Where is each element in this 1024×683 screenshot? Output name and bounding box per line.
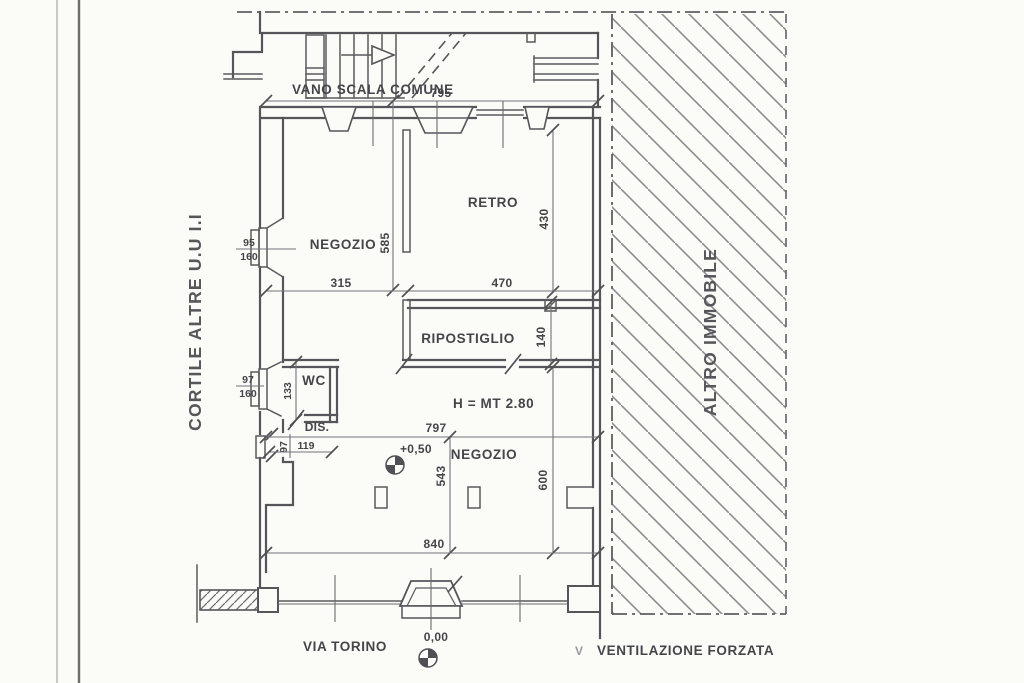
dim-797: 797 [426,421,447,435]
entrance-door [400,568,462,630]
dim-840: 840 [424,537,445,551]
room-label-dis: DIS. [305,420,330,434]
dim-795: 795 [431,86,452,100]
window-splay [322,107,356,131]
storefront [197,565,600,630]
forced-ventilation-label: VENTILAZIONE FORZATA [597,643,774,658]
dim-470: 470 [492,276,513,290]
dim-95: 95 [243,237,255,249]
window-splay [413,107,473,133]
pillars [375,487,480,508]
dim-97: 97 [278,441,290,453]
dim-600: 600 [536,470,550,491]
pier-right [568,586,600,612]
right-wall-niche [567,487,593,508]
window-fraction-wc: 97 160 [236,374,264,400]
dim-315: 315 [331,276,352,290]
adjacent-property-hatch: ALTRO IMMOBILE [237,12,788,614]
wall-section-hatch [200,590,258,610]
dim-160: 160 [240,251,258,263]
ventilation-marker: V [575,644,583,658]
benchmark-icon [419,649,437,667]
room-label-ripostiglio: RIPOSTIGLIO [421,331,515,346]
room-label-negozio-upper: NEGOZIO [310,237,376,252]
stairwell-label: VANO SCALA COMUNE [292,82,454,97]
dim-133: 133 [282,382,294,400]
window-fraction-negozio: 95 160 [236,237,296,263]
room-label-retro: RETRO [468,195,518,210]
stairwell-corridor: VANO SCALA COMUNE [224,12,598,107]
window-splay [525,107,549,129]
pier-left [258,588,278,612]
level-entrance-label: +0,50 [400,442,432,456]
bottom-labels: VIA TORINO V VENTILAZIONE FORZATA [303,639,774,658]
dim-585: 585 [378,233,392,254]
adjacent-building-label: ALTRO IMMOBILE [700,248,720,416]
ceiling-height-note: H = MT 2.80 [453,396,534,411]
dim-160b: 160 [239,388,257,400]
room-label-negozio-lower: NEGOZIO [451,447,517,462]
partition-retro [403,130,410,252]
courtyard-label: CORTILE ALTRE U.U I.I [185,213,205,431]
scanned-floor-plan-page: ALTRO IMMOBILE CORTILE ALTRE U.U I.I [0,0,1024,683]
dim-97b: 97 [242,374,254,386]
dim-543: 543 [434,466,448,487]
level-street-label: 0,00 [424,630,449,644]
page-border [57,0,79,683]
floor-plan-drawing: ALTRO IMMOBILE CORTILE ALTRE U.U I.I [0,0,1024,683]
dim-119: 119 [298,440,315,452]
dim-140: 140 [534,327,548,348]
window-negozio [251,218,283,277]
dim-430: 430 [537,209,551,230]
room-label-wc: WC [302,373,326,388]
flue-channel [527,33,598,82]
street-label: VIA TORINO [303,639,387,654]
dimension-lines: 585 430 140 600 315 470 797 133 97 [236,95,604,559]
benchmark-icon [386,456,404,474]
